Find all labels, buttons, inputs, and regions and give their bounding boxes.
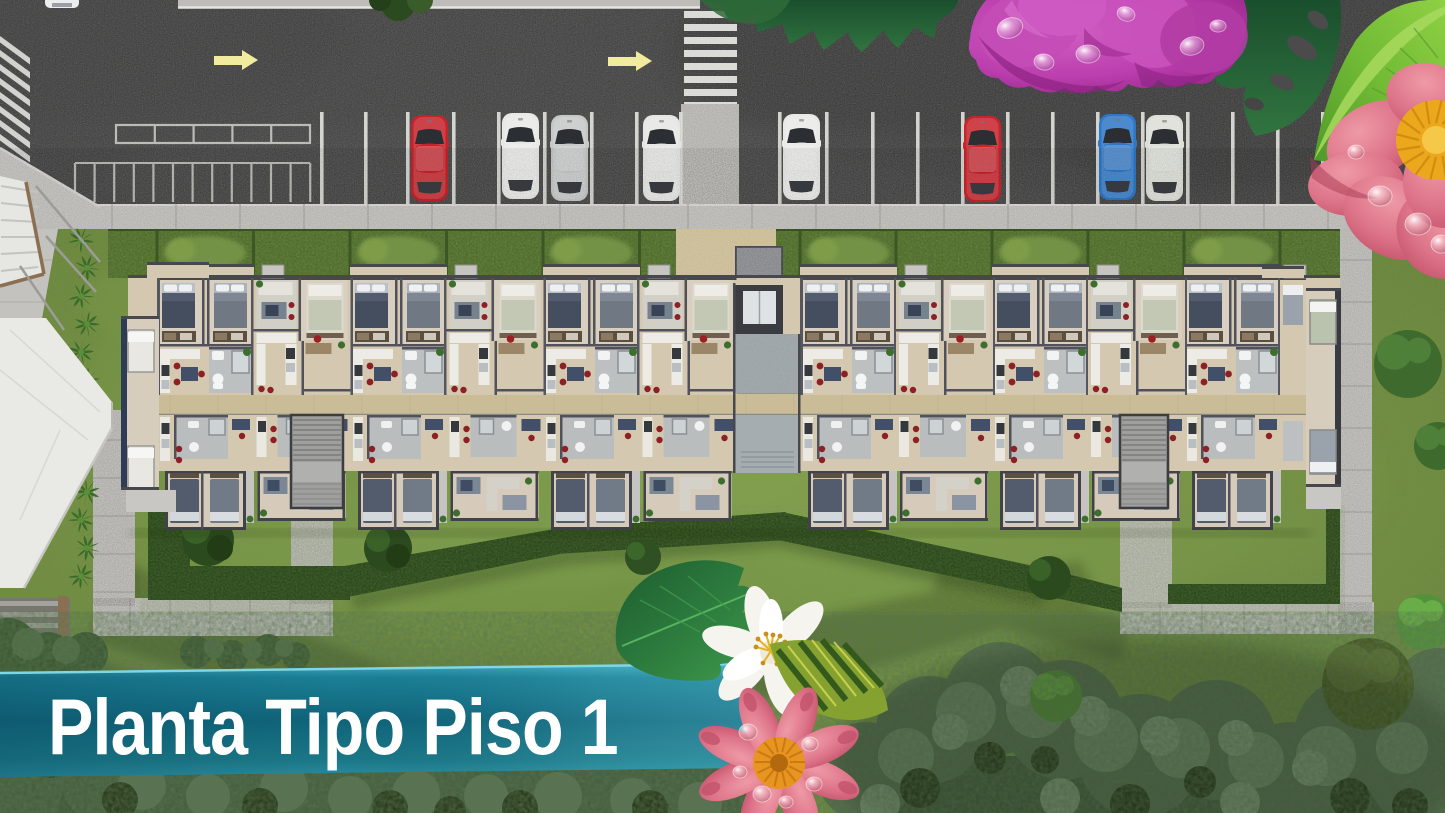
svg-text:Planta Tipo Piso 1: Planta Tipo Piso 1 <box>48 682 618 771</box>
